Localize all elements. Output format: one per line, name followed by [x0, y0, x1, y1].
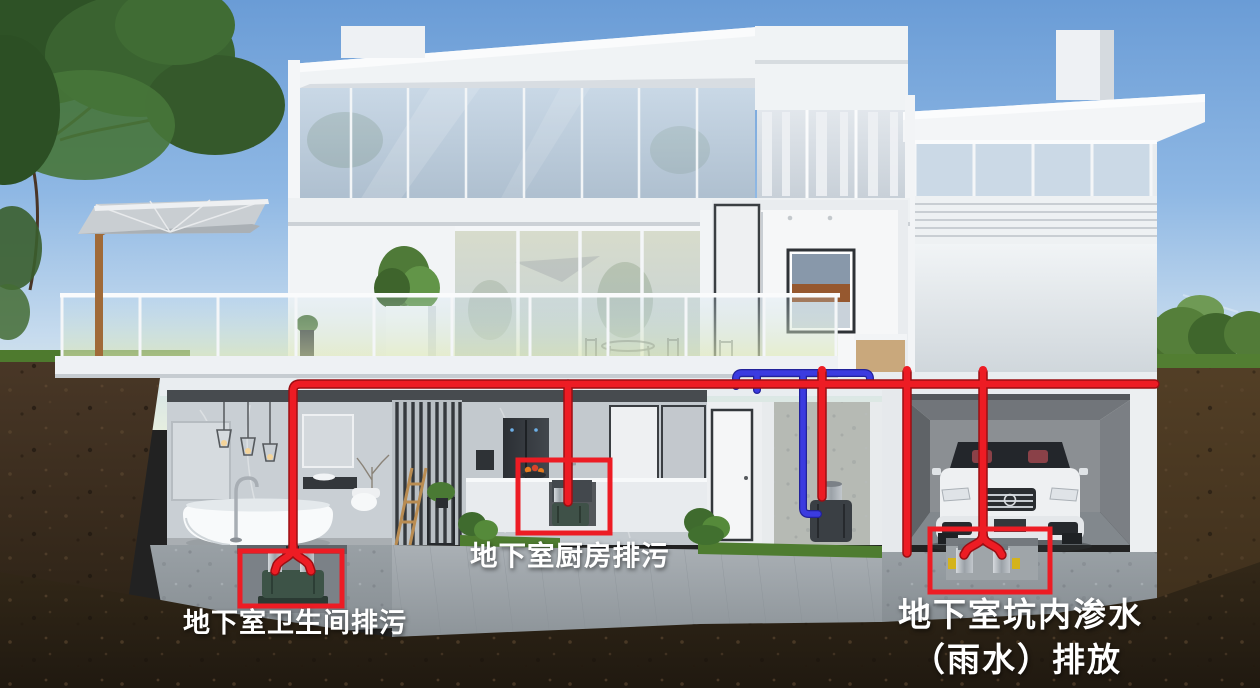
wall-niche: [172, 422, 230, 500]
car-mirror-left: [932, 468, 941, 475]
basin: [313, 474, 335, 481]
float-switch: [1012, 558, 1020, 569]
vanity-mirror: [303, 415, 353, 467]
glass-railing: [60, 293, 840, 357]
garage-ceiling: [906, 400, 1130, 420]
coffee-machine: [476, 450, 494, 470]
car-seat-right: [1028, 450, 1048, 463]
bathtub: [183, 499, 333, 551]
garage-column-right: [1130, 390, 1157, 555]
car-headlight-left: [942, 488, 970, 501]
slatted-partition: [392, 400, 462, 545]
louvered-soffit: [905, 196, 1157, 244]
basement-kitchen: [462, 402, 707, 545]
car-headlight-right: [1050, 488, 1078, 501]
upper-block-middle: [755, 26, 908, 198]
car-windshield: [950, 442, 1070, 468]
garage-upper-wall: [905, 244, 1157, 376]
label-pit-seepage-line1: 地下室坑内渗水: [898, 595, 1143, 634]
car-wheel-right: [1062, 533, 1082, 544]
label-bathroom-sewage: 地下室卫生间排污: [183, 607, 407, 639]
float-switch: [948, 558, 956, 569]
label-kitchen-sewage: 地下室厨房排污: [470, 540, 670, 572]
roof-parapet: [341, 26, 425, 58]
car-mirror-right: [1079, 468, 1088, 475]
curtain-window: [757, 110, 906, 198]
label-pit-seepage-line2: （雨水）排放: [912, 640, 1122, 679]
grass-right: [1150, 354, 1260, 368]
villa-drainage-cutaway: 地下室卫生间排污 地下室厨房排污 地下室坑内渗水 （雨水）排放: [0, 0, 1260, 688]
basement-bathroom: [167, 402, 392, 552]
